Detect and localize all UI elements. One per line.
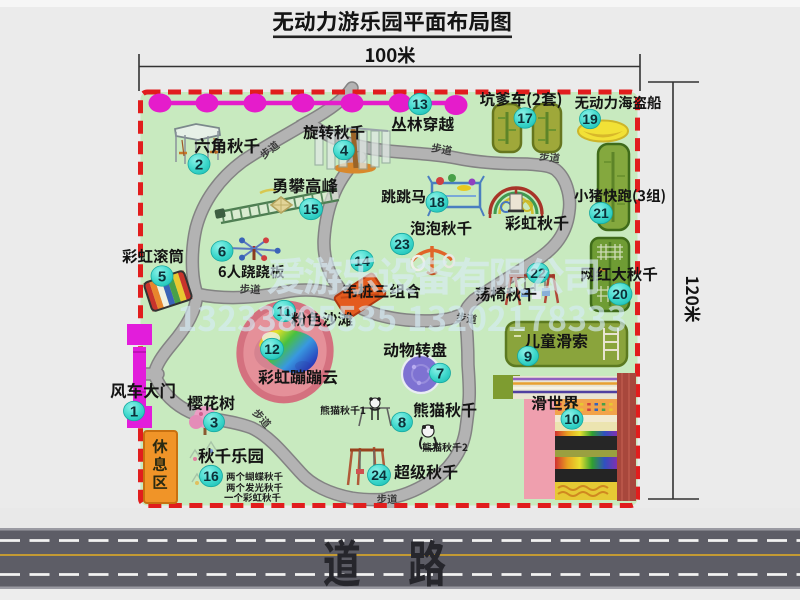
- svg-text:6: 6: [218, 243, 226, 260]
- svg-text:7: 7: [436, 365, 444, 382]
- svg-text:12: 12: [264, 341, 280, 357]
- svg-text:19: 19: [582, 111, 598, 127]
- svg-text:20: 20: [612, 286, 628, 302]
- svg-text:5: 5: [158, 268, 166, 285]
- svg-text:18: 18: [429, 194, 445, 210]
- svg-text:1: 1: [130, 403, 138, 420]
- svg-text:2: 2: [195, 156, 203, 173]
- svg-text:23: 23: [394, 236, 410, 252]
- svg-text:9: 9: [524, 348, 532, 365]
- svg-text:13: 13: [412, 96, 428, 112]
- svg-text:21: 21: [593, 205, 609, 221]
- svg-text:4: 4: [340, 142, 349, 159]
- svg-text:16: 16: [203, 468, 219, 484]
- svg-text:15: 15: [303, 201, 319, 217]
- svg-text:8: 8: [398, 414, 406, 431]
- svg-text:10: 10: [564, 411, 580, 427]
- svg-text:17: 17: [517, 110, 533, 126]
- svg-text:3: 3: [210, 414, 218, 431]
- svg-text:24: 24: [371, 467, 387, 483]
